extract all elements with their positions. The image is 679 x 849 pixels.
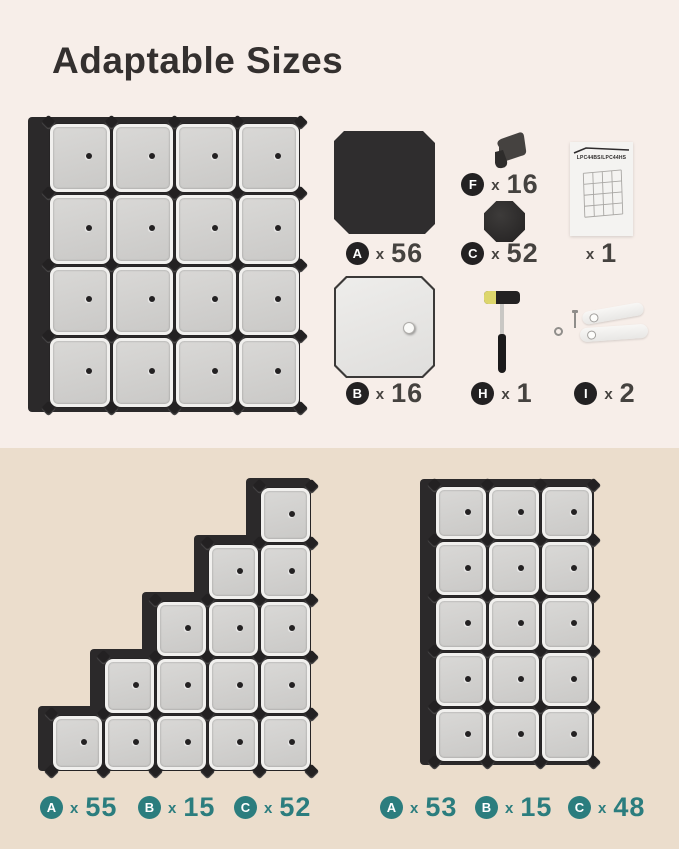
count-qty-c: 52 [279,792,311,823]
cube-door-face [542,598,592,651]
cube-door-face [176,195,236,264]
cube-door [237,194,300,266]
door-knob [571,620,577,626]
door-knob [237,625,243,631]
count-badge-c: C [568,796,591,819]
cube-door-face [261,545,310,599]
cube-door-face [50,124,110,193]
door-knob [289,625,295,631]
cube-door [155,600,207,657]
cube-door-face [261,602,310,656]
count-qty-b: 15 [520,792,552,823]
cube-door [111,122,174,194]
cube-door [434,541,487,597]
door-knob [289,511,295,517]
part-badge-c: C [461,242,484,265]
cube-door [111,194,174,266]
door-knob [212,225,218,231]
page-title: Adaptable Sizes [52,40,343,82]
times-sign: x [376,384,384,403]
part-qty-manual: 1 [601,238,617,269]
door-knob [275,368,281,374]
cube-door [48,194,111,266]
cube-door [155,657,207,714]
cube-door [540,485,593,541]
door-knob [185,739,191,745]
cube-door-face [239,124,299,193]
door-knob [289,682,295,688]
door-knob [571,565,577,571]
cube-door [487,541,540,597]
count-badge-b: B [475,796,498,819]
times-sign: x [505,798,513,817]
part-qty-h: 1 [517,378,533,409]
part-count-h: H x 1 [457,379,547,407]
cube-door-face [209,716,258,770]
cube-door-face [50,195,110,264]
staircase-configuration [38,478,311,771]
cube-door [434,596,487,652]
manual-title: LPC44BS/LPC44HS [570,155,633,161]
part-badge-h: H [471,382,494,405]
door-knob [133,739,139,745]
cube-door [207,714,259,771]
cube-door-face [105,716,154,770]
clip-connector-icon [487,131,527,169]
cube-door [259,600,311,657]
door-knob [275,153,281,159]
door-knob [465,620,471,626]
cube-door-face [489,487,539,540]
cube-door [434,652,487,708]
cube-door-face [113,195,173,264]
part-badge-i: I [574,382,597,405]
cube-door [174,337,237,409]
tower-count-a: A x 53 [380,793,457,821]
cube-door [174,194,237,266]
count-qty-a: 53 [425,792,457,823]
cube-door [207,657,259,714]
part-count-i: I x 2 [560,379,650,407]
times-sign: x [410,798,418,817]
door-knob [275,296,281,302]
door-knob [81,739,87,745]
mallet-shaft [500,304,504,334]
washer-icon [554,327,563,336]
door-knob [275,225,281,231]
part-count-b: B x 16 [334,379,435,407]
part-count-c: C x 52 [455,239,545,267]
times-sign: x [598,798,606,817]
mallet-grip [498,334,506,373]
door-knob [149,153,155,159]
cube-door-face [489,653,539,706]
cube-door-face [50,338,110,407]
door-knob [212,153,218,159]
door-knob [518,509,524,515]
door-knob [212,296,218,302]
rubber-mallet [484,291,520,373]
anti-tip-kit [552,300,652,355]
cube-door-face [157,659,206,713]
door-knob [571,731,577,737]
cube-door [259,657,311,714]
count-badge-a: A [40,796,63,819]
part-badge-f: F [461,173,484,196]
cube-door-face [176,338,236,407]
count-qty-a: 55 [85,792,117,823]
count-badge-a: A [380,796,403,819]
cube-door [540,596,593,652]
back-panel-black [334,131,435,234]
cube-door [434,485,487,541]
cube-door-face [113,124,173,193]
cube-door [434,707,487,763]
octagon-connector-icon [484,201,525,242]
cube-door [48,337,111,409]
door-knob [237,739,243,745]
screw-icon [574,313,576,328]
count-badge-b: B [138,796,161,819]
cube-door [237,337,300,409]
part-qty-f: 16 [507,169,539,200]
cube-door [207,600,259,657]
cube-door [174,122,237,194]
door-knob [518,620,524,626]
parts-overview-section: Adaptable Sizes A x 56 F x 16 C x 52 [0,0,679,448]
door-knob [185,682,191,688]
times-sign: x [168,798,176,817]
cube-door-face [239,338,299,407]
cube-door [174,265,237,337]
times-sign: x [376,244,384,263]
mallet-head [484,291,520,304]
cube-door [111,337,174,409]
cube-door-face [489,542,539,595]
staircase-count-c: C x 52 [234,793,311,821]
staircase-count-a: A x 55 [40,793,117,821]
cube-door [487,652,540,708]
door-knob [403,322,415,334]
cube-door [207,543,259,600]
cube-door [111,265,174,337]
part-count-f: F x 16 [455,170,545,198]
times-sign: x [501,384,509,403]
cube-door [540,652,593,708]
cube-door [540,707,593,763]
configurations-section: A x 55 B x 15 C x 52 A x 53 B x 15 C x 4… [0,448,679,849]
tower-count-c: C x 48 [568,793,645,821]
cube-door-face [489,598,539,651]
door-knob [465,676,471,682]
cube-door-face [113,338,173,407]
product-infographic: Adaptable Sizes A x 56 F x 16 C x 52 [0,0,679,849]
manual-grid-icon [577,165,627,221]
door-knob [465,565,471,571]
cube-door [237,122,300,194]
cube-door-face [105,659,154,713]
tower-count-b: B x 15 [475,793,552,821]
part-qty-c: 52 [507,238,539,269]
count-qty-c: 48 [613,792,645,823]
cube-organizer-4x4 [28,117,300,412]
part-qty-a: 56 [391,238,423,269]
cube-door [103,714,155,771]
cube-door-face [489,709,539,762]
part-badge-b: B [346,382,369,405]
cube-door [103,657,155,714]
door-knob [149,368,155,374]
door-knob [518,565,524,571]
door-knob [86,225,92,231]
times-sign: x [586,244,594,263]
strap-hole [589,313,599,323]
cube-door [487,485,540,541]
door-knob [149,296,155,302]
door-knob [237,568,243,574]
cube-door-face [436,653,486,706]
door-knob [571,509,577,515]
cube-door-face [436,709,486,762]
door-knob [185,625,191,631]
cube-door-face [239,267,299,336]
door-knob [465,509,471,515]
staircase-count-b: B x 15 [138,793,215,821]
cube-door [155,714,207,771]
door-knob [571,676,577,682]
cube-door [259,714,311,771]
anti-tip-strap [581,302,644,326]
count-badge-c: C [234,796,257,819]
cube-door-face [176,267,236,336]
door-knob [289,739,295,745]
door-knob [86,368,92,374]
times-sign: x [491,244,499,263]
door-knob [237,682,243,688]
cube-door-face [542,709,592,762]
cube-door-face [261,659,310,713]
cube-door-face [436,542,486,595]
cube-door-face [113,267,173,336]
cube-door [237,265,300,337]
cube-door-face [157,602,206,656]
door-knob [465,731,471,737]
door-knob [289,568,295,574]
cube-door-face [209,602,258,656]
cube-door-face [176,124,236,193]
cube-door [259,543,311,600]
cube-door-face [209,545,258,599]
door-knob [86,153,92,159]
instruction-manual: LPC44BS/LPC44HS [570,142,633,236]
cube-door [487,707,540,763]
part-count-a: A x 56 [334,239,435,267]
cube-door [48,265,111,337]
cube-door-face [436,487,486,540]
door-knob [86,296,92,302]
cube-door [487,596,540,652]
cube-door-face [542,653,592,706]
count-qty-b: 15 [183,792,215,823]
cube-door-face [209,659,258,713]
door-panel-white [334,276,435,378]
cube-door-face [542,542,592,595]
part-badge-a: A [346,242,369,265]
cube-door [51,714,103,771]
door-knob [212,368,218,374]
strap-hole [587,330,597,340]
cube-door-face [436,598,486,651]
door-knob [149,225,155,231]
tower-configuration [420,479,594,766]
door-panel-face [336,278,433,376]
cube-door-face [542,487,592,540]
mallet-rubber-tip [484,291,496,304]
cube-door-face [261,488,310,542]
door-knob [518,731,524,737]
cube-door-face [157,716,206,770]
cube-door-face [261,716,310,770]
times-sign: x [264,798,272,817]
door-knob [518,676,524,682]
part-qty-i: 2 [620,378,636,409]
cube-door-face [50,267,110,336]
part-qty-b: 16 [391,378,423,409]
cube-door [540,541,593,597]
cube-door [48,122,111,194]
anti-tip-strap [580,324,649,343]
cube-door-face [239,195,299,264]
door-knob [133,682,139,688]
times-sign: x [491,175,499,194]
times-sign: x [604,384,612,403]
cube-door-face [53,716,102,770]
part-count-manual: x 1 [570,239,633,267]
cube-door [259,486,311,543]
manual-cover-line [572,145,631,154]
times-sign: x [70,798,78,817]
